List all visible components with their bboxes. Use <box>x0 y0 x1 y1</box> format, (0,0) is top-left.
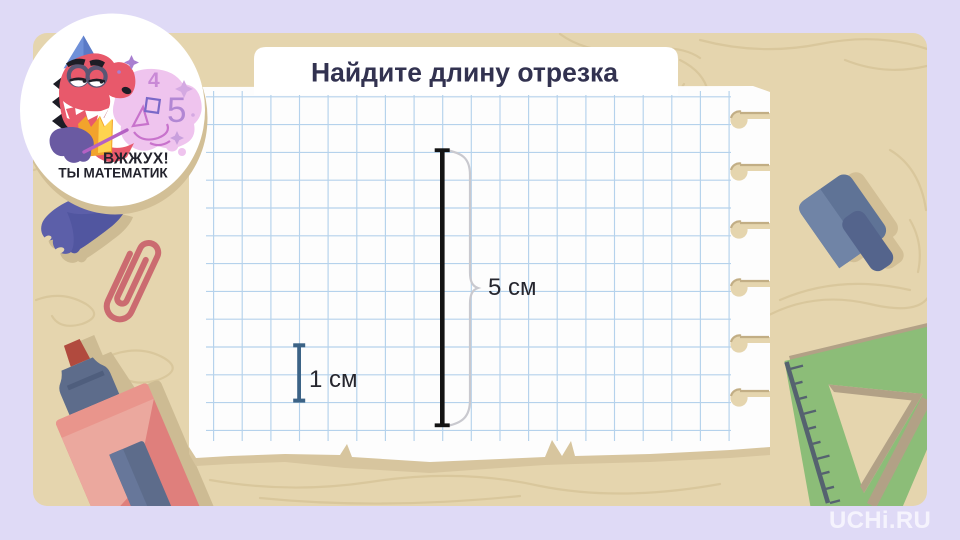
svg-text:5 см: 5 см <box>488 274 537 301</box>
svg-text:ТЫ МАТЕМАТИК: ТЫ МАТЕМАТИК <box>58 166 168 181</box>
svg-text:UCHi.RU: UCHi.RU <box>829 507 931 534</box>
svg-text:4: 4 <box>148 69 160 92</box>
svg-text:1 см: 1 см <box>309 366 358 393</box>
svg-text:Найдите длину отрезка: Найдите длину отрезка <box>311 58 618 88</box>
